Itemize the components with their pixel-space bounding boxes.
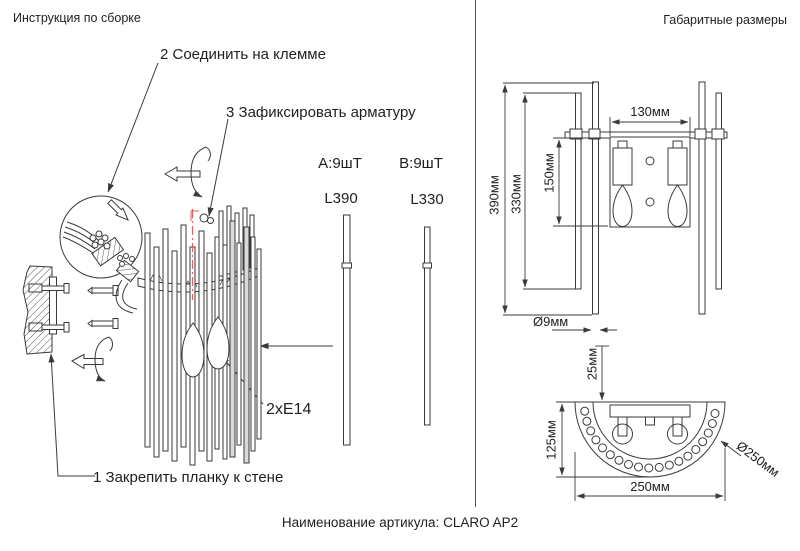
right-panel-title: Габаритные размеры (655, 13, 787, 27)
step-2-label: 2 Соединить на клемме (160, 46, 326, 63)
rod-b-length: L330 (410, 191, 443, 208)
left-panel-title: Инструкция по сборке (13, 11, 141, 25)
rod-a-length: L390 (324, 190, 357, 207)
rod-a-quantity: А:9шТ (318, 155, 362, 172)
wire-connector (116, 254, 139, 314)
socket-type-label: 2хЕ14 (266, 401, 311, 419)
lamp-body (138, 206, 261, 465)
step-1-label: 1 Закрепить планку к стене (93, 469, 283, 486)
dimension-views (503, 82, 741, 501)
screws (88, 286, 118, 329)
wall-section (23, 266, 69, 354)
article-name: Наименование артикула: CLARO AP2 (0, 515, 800, 530)
top-view (575, 402, 725, 477)
dim-wall-offset: 25мм (585, 348, 600, 380)
dim-total-width: 250мм (630, 479, 670, 494)
rod-a (342, 215, 352, 445)
dim-rod-short: 330мм (509, 174, 524, 214)
dim-plate-width: 130мм (630, 104, 670, 119)
instruction-sheet: Инструкция по сборке Габаритные размеры … (0, 0, 800, 551)
dim-rod-diameter: Ø9мм (533, 314, 568, 329)
rod-b (423, 227, 432, 425)
candle-bulbs (182, 317, 229, 377)
step-3-label: 3 Зафиксировать арматуру (226, 104, 416, 121)
assembly-drawing (23, 63, 432, 476)
fixing-screw (200, 214, 214, 224)
dim-rod-long: 390мм (487, 175, 502, 215)
dim-plate-height: 150мм (542, 153, 557, 193)
dim-half-depth: 125мм (544, 420, 559, 460)
rod-b-quantity: В:9шТ (399, 155, 443, 172)
